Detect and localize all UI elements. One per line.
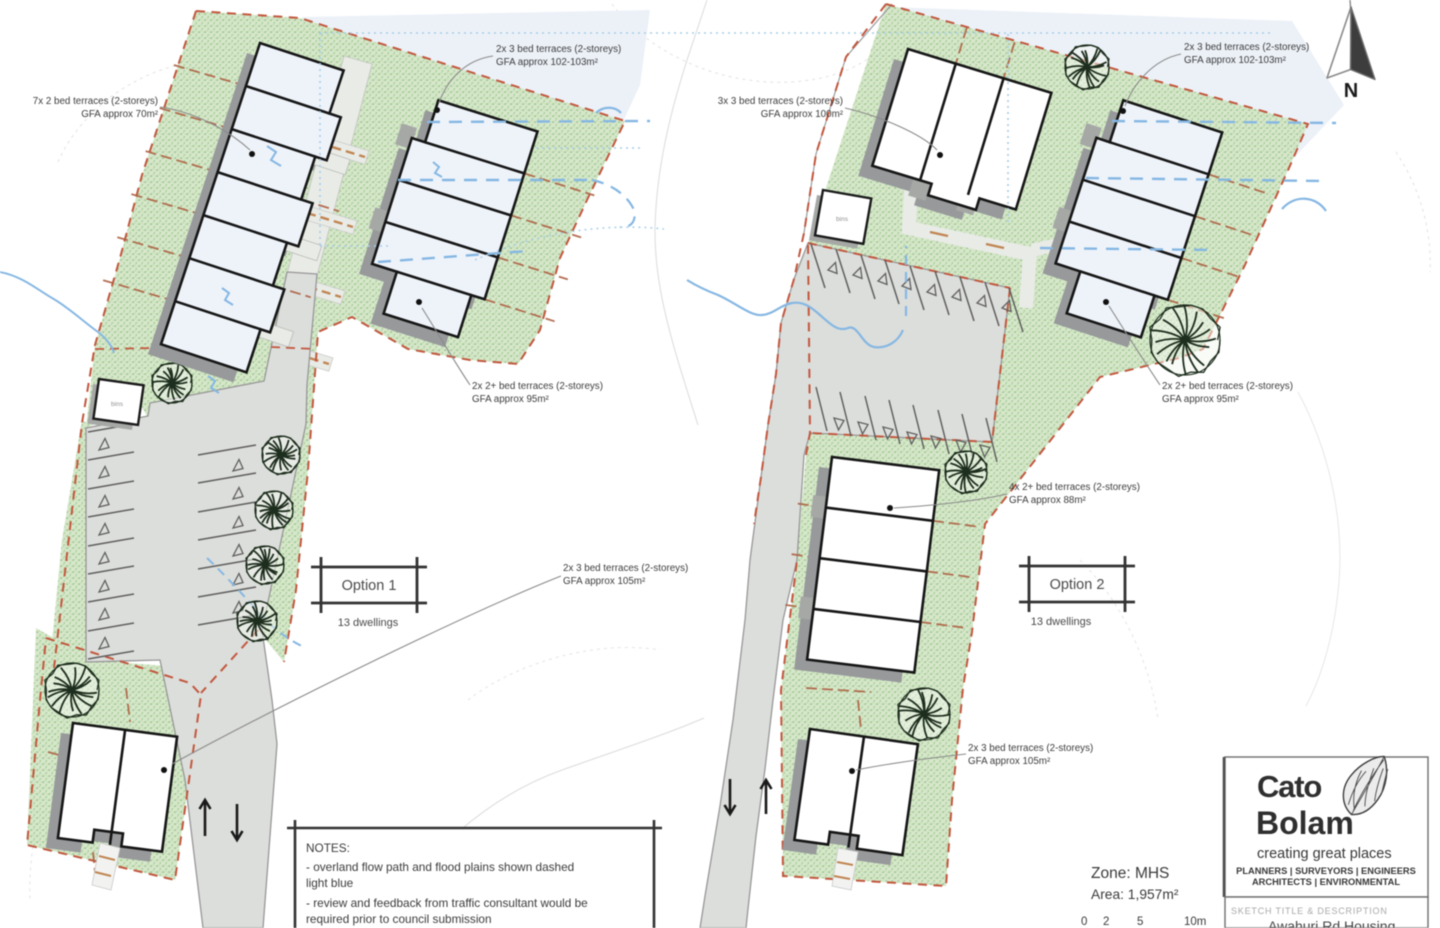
svg-text:NOTES:: NOTES: bbox=[306, 841, 350, 855]
svg-text:- overland flow path and flood: - overland flow path and flood plains sh… bbox=[306, 860, 574, 874]
svg-text:13 dwellings: 13 dwellings bbox=[338, 617, 399, 629]
svg-text:ARCHITECTS | ENVIRONMENTAL: ARCHITECTS | ENVIRONMENTAL bbox=[1252, 877, 1400, 887]
svg-text:2x 2+ bed terraces (2-storeys: 2x 2+ bed terraces (2-storeys) bbox=[472, 381, 603, 392]
svg-text:2x 3 bed terraces (2-storeys): 2x 3 bed terraces (2-storeys) bbox=[563, 563, 688, 574]
svg-text:bins: bins bbox=[836, 216, 849, 223]
svg-text:GFA approx 102-103m²: GFA approx 102-103m² bbox=[496, 57, 599, 68]
svg-text:- review and feedback from tra: - review and feedback from traffic consu… bbox=[306, 896, 588, 910]
svg-text:Zone: MHS: Zone: MHS bbox=[1091, 865, 1169, 882]
svg-text:N: N bbox=[1344, 80, 1358, 102]
svg-text:4x 2+ bed terraces (2-storeys: 4x 2+ bed terraces (2-storeys) bbox=[1009, 482, 1140, 493]
svg-text:GFA approx 88m²: GFA approx 88m² bbox=[1009, 495, 1087, 506]
svg-text:GFA approx 95m²: GFA approx 95m² bbox=[472, 394, 550, 405]
svg-text:creating great places: creating great places bbox=[1257, 846, 1392, 862]
svg-text:bins: bins bbox=[111, 401, 124, 408]
svg-text:GFA approx 105m²: GFA approx 105m² bbox=[563, 576, 646, 587]
svg-text:GFA approx 100m²: GFA approx 100m² bbox=[761, 109, 844, 120]
svg-text:required prior to council subm: required prior to council submission bbox=[306, 912, 492, 926]
svg-text:Area: 1,957m²: Area: 1,957m² bbox=[1091, 887, 1179, 902]
svg-text:Cato: Cato bbox=[1257, 769, 1321, 804]
svg-text:5: 5 bbox=[1137, 916, 1143, 928]
svg-text:0: 0 bbox=[1081, 916, 1087, 928]
svg-text:PLANNERS | SURVEYORS | ENGINEE: PLANNERS | SURVEYORS | ENGINEERS bbox=[1236, 866, 1416, 876]
svg-text:GFA approx 95m²: GFA approx 95m² bbox=[1162, 394, 1240, 405]
svg-text:2x 3 bed terraces (2-storeys): 2x 3 bed terraces (2-storeys) bbox=[1184, 42, 1309, 53]
svg-text:7x 2 bed terraces (2-storeys): 7x 2 bed terraces (2-storeys) bbox=[33, 96, 158, 107]
svg-text:2x 3 bed terraces (2-storeys): 2x 3 bed terraces (2-storeys) bbox=[968, 743, 1093, 754]
svg-text:2x 3 bed terraces (2-storeys): 2x 3 bed terraces (2-storeys) bbox=[496, 44, 621, 55]
svg-text:light blue: light blue bbox=[306, 876, 354, 890]
svg-text:2x 2+ bed terraces (2-storeys: 2x 2+ bed terraces (2-storeys) bbox=[1162, 381, 1293, 392]
svg-text:2: 2 bbox=[1103, 916, 1109, 928]
svg-text:13 dwellings: 13 dwellings bbox=[1031, 616, 1092, 628]
svg-text:Awahuri Rd Housing: Awahuri Rd Housing bbox=[1268, 918, 1395, 928]
svg-text:3x 3 bed terraces (2-storeys): 3x 3 bed terraces (2-storeys) bbox=[718, 96, 843, 107]
svg-text:Option 2: Option 2 bbox=[1050, 577, 1105, 593]
svg-text:GFA approx 102-103m²: GFA approx 102-103m² bbox=[1184, 55, 1287, 66]
svg-text:Bolam: Bolam bbox=[1256, 805, 1354, 841]
svg-text:Option 1: Option 1 bbox=[342, 578, 397, 594]
svg-text:GFA approx 70m²: GFA approx 70m² bbox=[81, 109, 159, 120]
svg-text:10m: 10m bbox=[1184, 916, 1206, 928]
svg-text:SKETCH TITLE & DESCRIPTION: SKETCH TITLE & DESCRIPTION bbox=[1231, 906, 1388, 916]
svg-text:GFA approx 105m²: GFA approx 105m² bbox=[968, 756, 1051, 767]
